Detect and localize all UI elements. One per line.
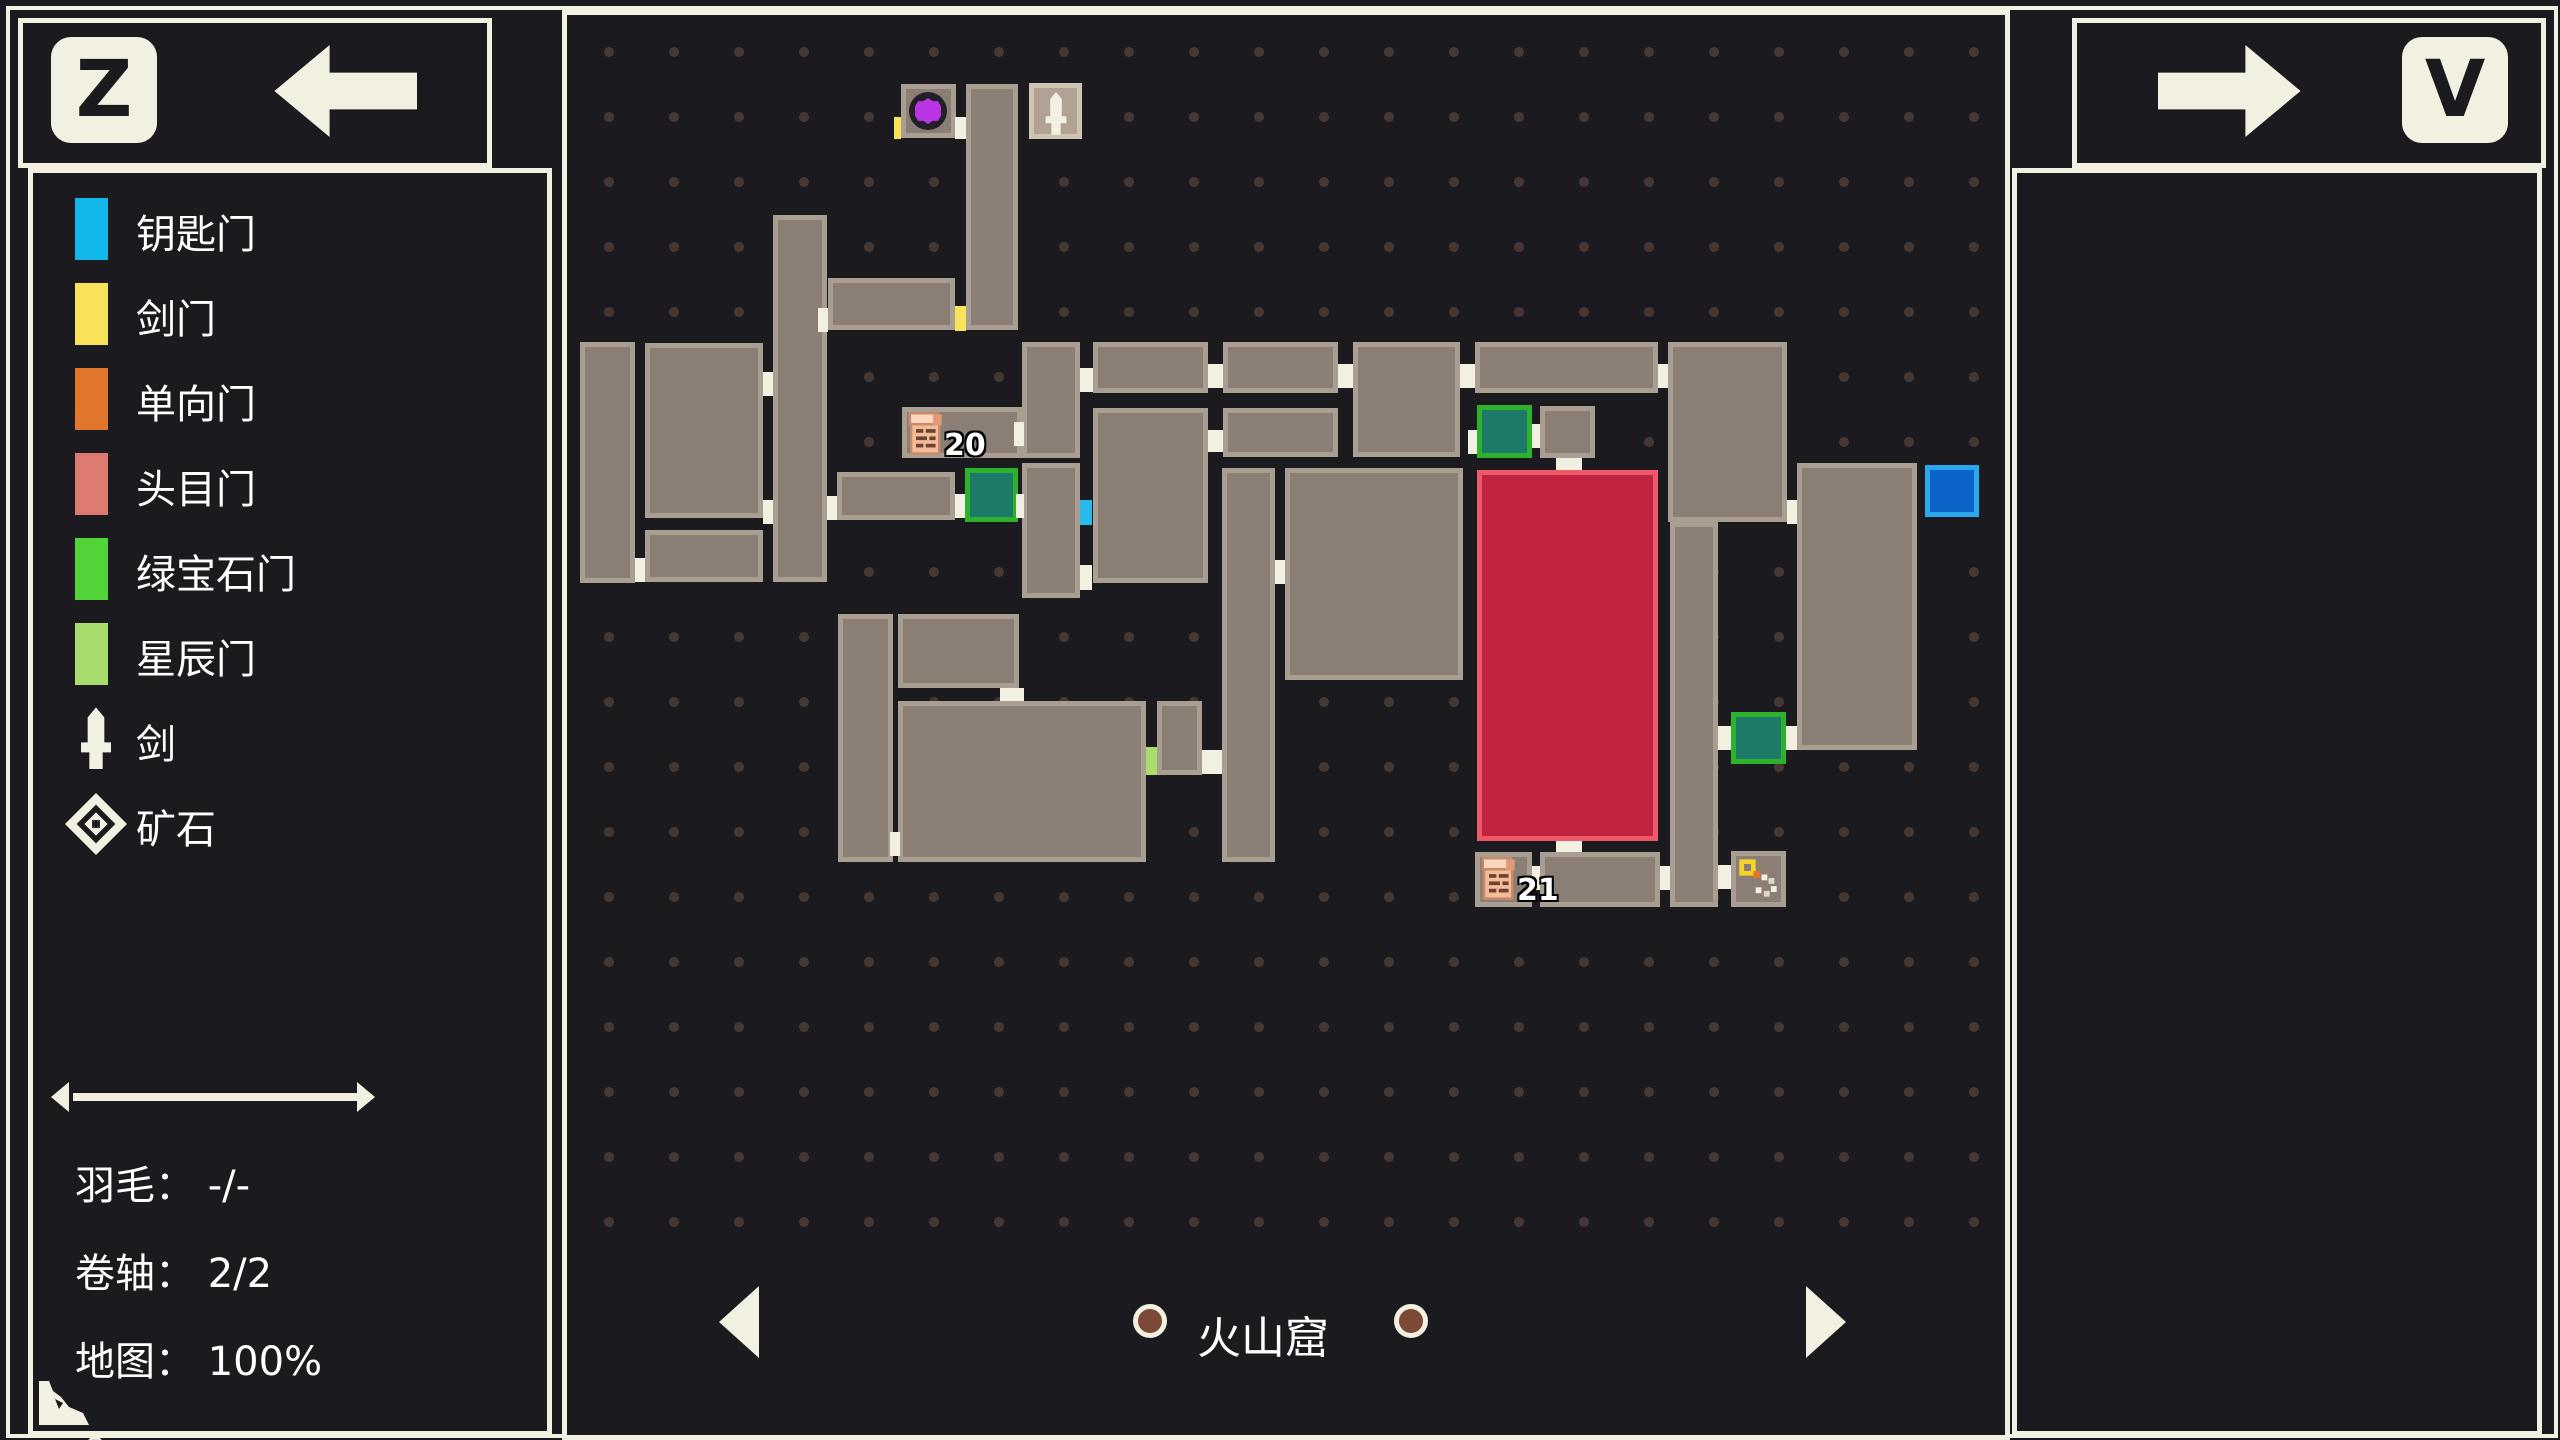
page-dot-2[interactable] bbox=[1394, 1304, 1428, 1338]
stat-label: 卷轴： bbox=[75, 1251, 195, 1297]
map-name: 火山窟 bbox=[1197, 1302, 1329, 1366]
legend-item-ore-item: 矿石 bbox=[33, 793, 547, 859]
legend-item-key-door: 钥匙门 bbox=[33, 198, 547, 264]
z-keycap: Z bbox=[51, 37, 157, 143]
arrow-right-icon bbox=[2107, 45, 2347, 137]
page-dot-1[interactable] bbox=[1133, 1304, 1167, 1338]
sword-item-iconbox bbox=[63, 706, 129, 772]
legend-label: 矿石 bbox=[136, 797, 216, 855]
scrollbar-left-arrow-icon[interactable] bbox=[51, 1082, 69, 1112]
stat-value: -/- bbox=[195, 1163, 250, 1209]
stat-value: 2/2 bbox=[195, 1251, 272, 1297]
right-sidebar bbox=[2012, 168, 2542, 1436]
one-way-door-swatch bbox=[75, 368, 108, 430]
legend-label: 绿宝石门 bbox=[136, 542, 296, 600]
corner-ornament bbox=[39, 1381, 89, 1425]
stat-scrolls: 卷轴： 2/2 bbox=[75, 1241, 272, 1299]
sword-icon bbox=[76, 706, 116, 772]
legend-item-boss-door: 头目门 bbox=[33, 453, 547, 519]
legend-label: 头目门 bbox=[136, 457, 256, 515]
legend-sidebar: 钥匙门剑门单向门头目门绿宝石门星辰门 剑 矿石 羽毛： -/-卷轴： 2/2地图… bbox=[28, 168, 552, 1436]
stat-label: 地图： bbox=[75, 1339, 195, 1385]
legend-label: 单向门 bbox=[136, 372, 256, 430]
arrow-left-icon bbox=[228, 45, 468, 137]
sword-door-swatch bbox=[75, 283, 108, 345]
game-map-screen: Z V 钥匙门剑门单向门头目门绿宝石门星辰门 剑 矿石 羽毛： -/-卷轴： 2… bbox=[0, 0, 2560, 1440]
v-keycap: V bbox=[2402, 37, 2508, 143]
legend-item-sword-door: 剑门 bbox=[33, 283, 547, 349]
legend-label: 剑门 bbox=[136, 287, 216, 345]
stat-map: 地图： 100% bbox=[75, 1329, 322, 1387]
key-door-swatch bbox=[75, 198, 108, 260]
legend-item-one-way-door: 单向门 bbox=[33, 368, 547, 434]
legend-label: 星辰门 bbox=[136, 627, 256, 685]
prev-area-button[interactable]: Z bbox=[18, 18, 492, 168]
legend-item-star-door: 星辰门 bbox=[33, 623, 547, 689]
v-key-label: V bbox=[2425, 45, 2485, 135]
map-viewport[interactable] bbox=[567, 15, 1995, 1265]
legend-label: 钥匙门 bbox=[136, 202, 256, 260]
stat-feathers: 羽毛： -/- bbox=[75, 1153, 250, 1211]
scrollbar-right-arrow-icon[interactable] bbox=[357, 1082, 375, 1112]
map-next-arrow[interactable] bbox=[1806, 1286, 1846, 1358]
map-prev-arrow[interactable] bbox=[719, 1286, 759, 1358]
stat-value: 100% bbox=[195, 1339, 322, 1385]
legend-item-emerald-door: 绿宝石门 bbox=[33, 538, 547, 604]
next-area-button[interactable]: V bbox=[2072, 18, 2546, 168]
scrollbar-track bbox=[73, 1093, 357, 1101]
star-door-swatch bbox=[75, 623, 108, 685]
emerald-door-swatch bbox=[75, 538, 108, 600]
ore-icon bbox=[64, 793, 128, 855]
legend-label: 剑 bbox=[136, 712, 176, 770]
ore-item-iconbox bbox=[63, 791, 129, 857]
z-key-label: Z bbox=[76, 45, 133, 135]
leaf-icon bbox=[69, 1431, 121, 1440]
legend-item-sword-item: 剑 bbox=[33, 708, 547, 774]
boss-door-swatch bbox=[75, 453, 108, 515]
stat-label: 羽毛： bbox=[75, 1163, 195, 1209]
